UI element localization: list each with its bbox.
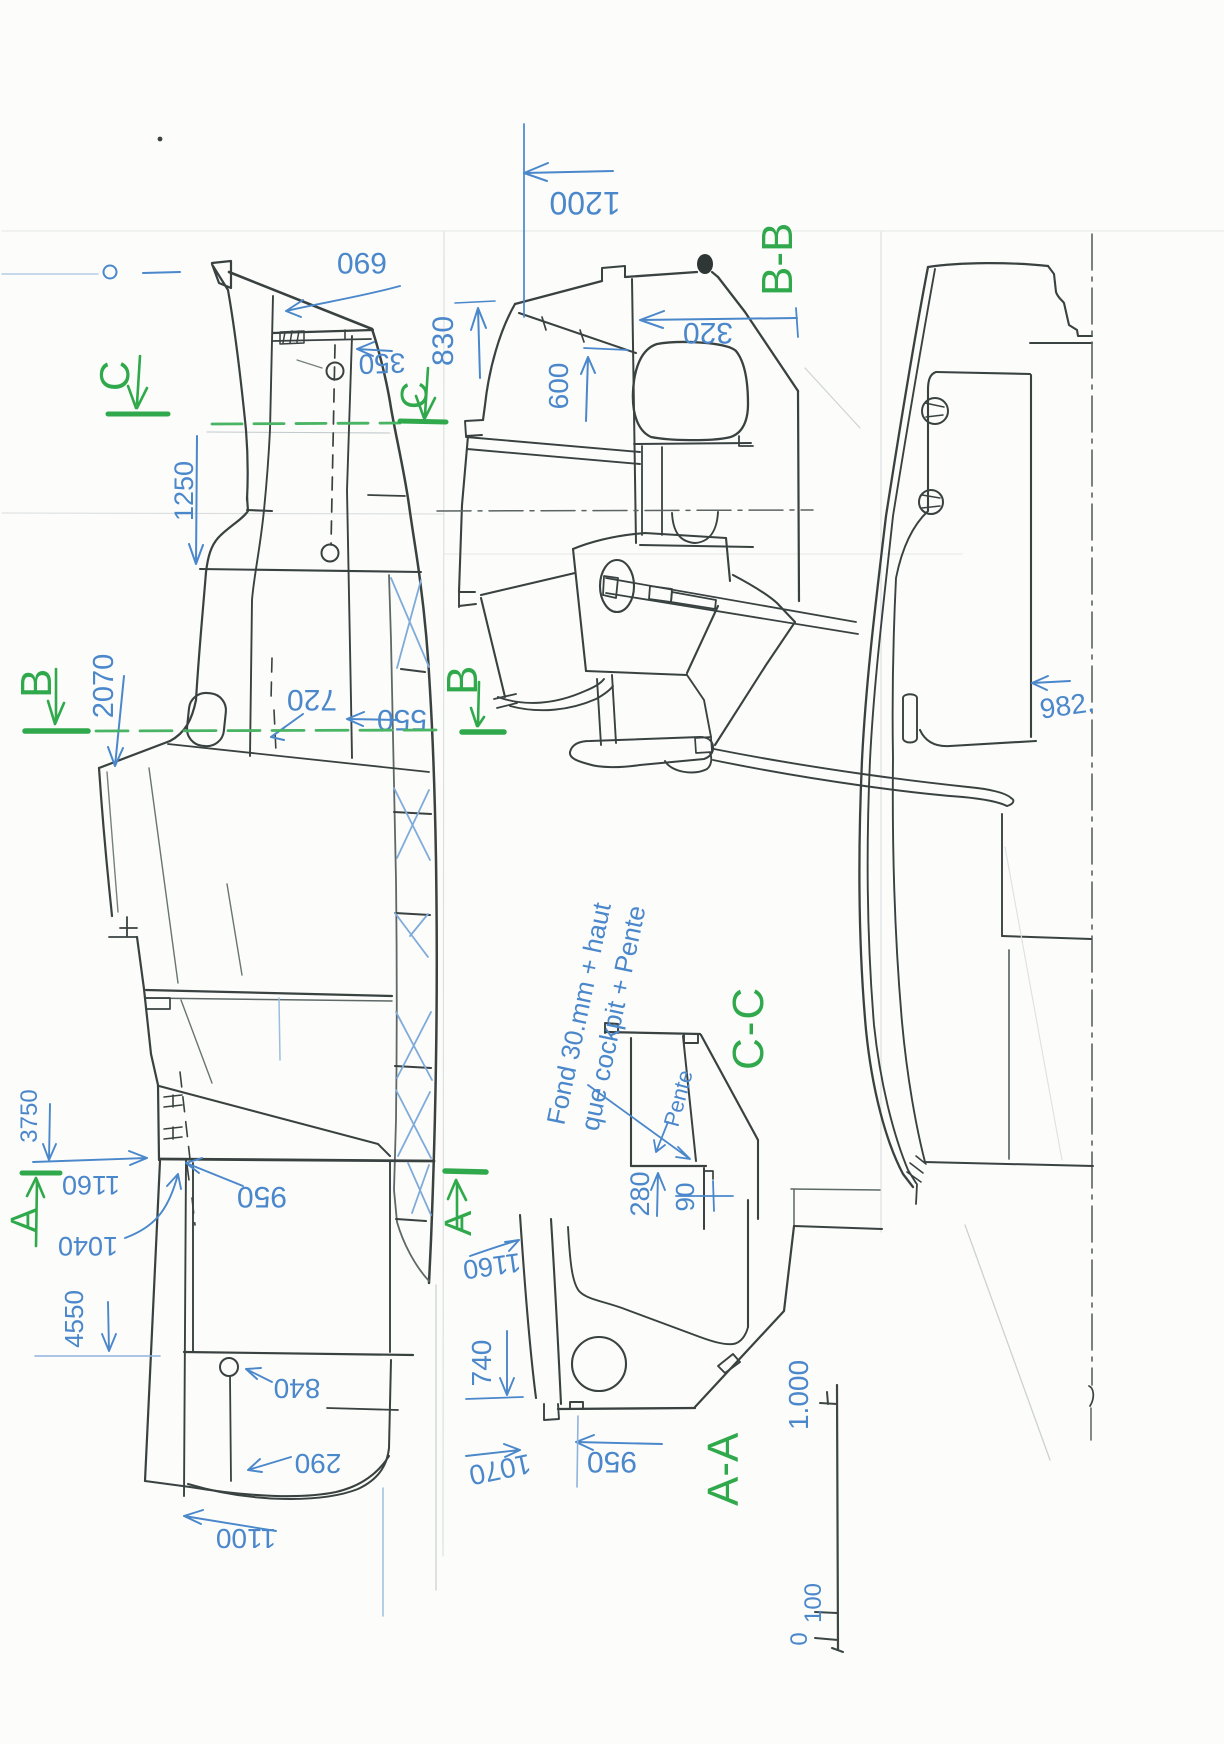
- svg-text:320: 320: [683, 316, 733, 349]
- svg-text:3750: 3750: [16, 1089, 43, 1142]
- svg-text:0: 0: [786, 1632, 813, 1645]
- svg-text:1200: 1200: [549, 185, 620, 221]
- svg-text:B-B: B-B: [753, 223, 802, 296]
- svg-text:1100: 1100: [216, 1523, 276, 1554]
- svg-text:690: 690: [337, 246, 387, 279]
- svg-text:1160: 1160: [62, 1170, 120, 1200]
- svg-text:90: 90: [670, 1183, 700, 1212]
- svg-text:1.000: 1.000: [783, 1360, 814, 1430]
- svg-text:A: A: [4, 1207, 46, 1233]
- svg-text:290: 290: [295, 1448, 342, 1479]
- svg-text:4550: 4550: [59, 1290, 89, 1348]
- svg-text:B: B: [12, 669, 61, 698]
- svg-text:280: 280: [625, 1171, 655, 1216]
- svg-text:840: 840: [274, 1373, 321, 1404]
- svg-text:1250: 1250: [169, 461, 199, 521]
- svg-text:830: 830: [427, 316, 460, 366]
- svg-text:950: 950: [587, 1445, 637, 1478]
- svg-text:C-C: C-C: [724, 986, 773, 1070]
- svg-text:740: 740: [466, 1340, 497, 1387]
- svg-text:100: 100: [800, 1583, 827, 1623]
- svg-text:C: C: [91, 361, 138, 391]
- svg-text:1040: 1040: [58, 1231, 118, 1261]
- svg-text:600: 600: [543, 363, 574, 410]
- svg-text:950: 950: [237, 1180, 287, 1213]
- svg-text:2070: 2070: [88, 654, 120, 719]
- svg-text:A: A: [438, 1210, 480, 1236]
- svg-text:720: 720: [287, 683, 337, 716]
- svg-text:A-A: A-A: [699, 1432, 748, 1506]
